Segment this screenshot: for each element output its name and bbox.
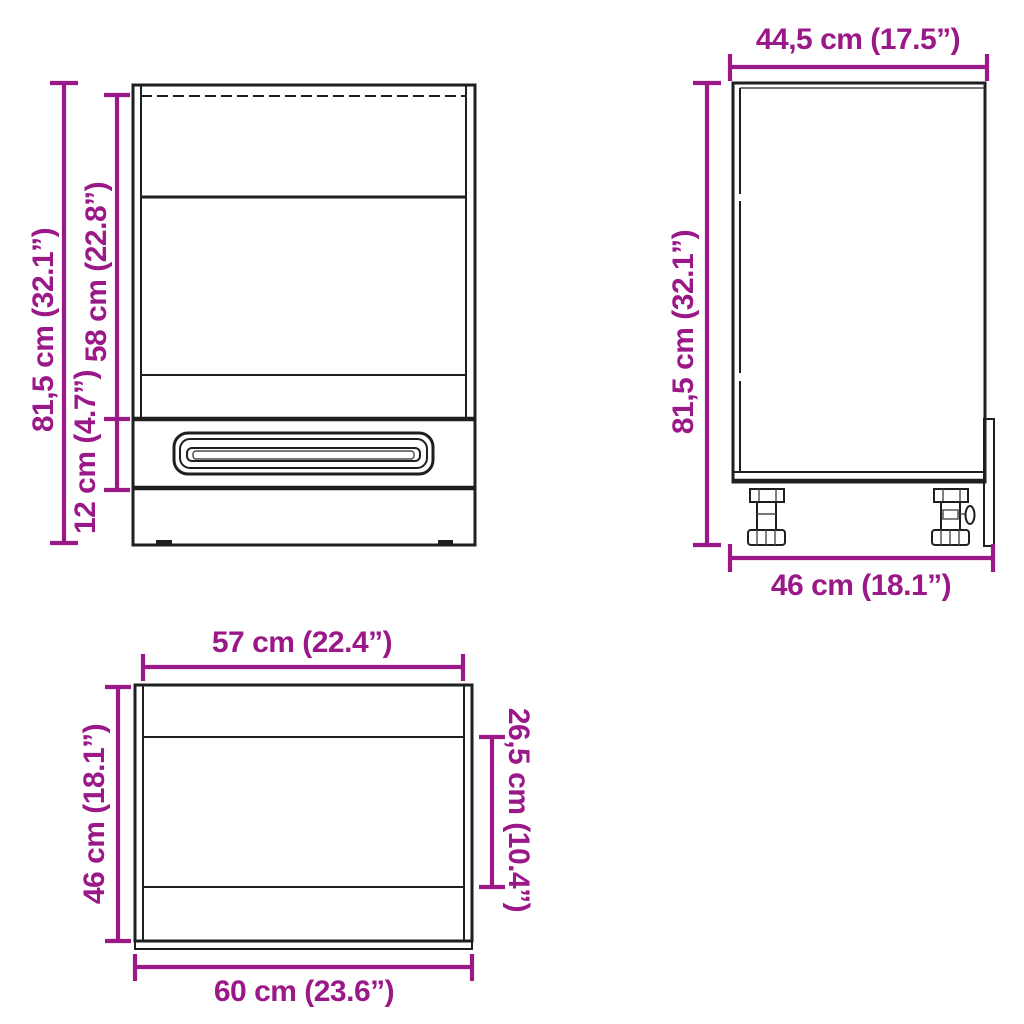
front-drawer-height-label: 12 cm (4.7”) <box>69 370 103 534</box>
top-view-drawing <box>135 685 472 949</box>
side-height-label: 81,5 cm (32.1”) <box>667 230 701 434</box>
side-leg-front <box>748 489 785 545</box>
side-leg-back <box>932 489 975 545</box>
dimension-diagram: 81,5 cm (32.1”) 58 cm (22.8”) 12 cm (4.7… <box>0 0 1024 1024</box>
top-depth-label: 46 cm (18.1”) <box>78 724 112 904</box>
top-inner-depth-label: 26,5 cm (10.4”) <box>501 708 535 912</box>
drawer-handle <box>174 433 433 474</box>
front-view-drawing <box>133 85 475 546</box>
front-total-height-label: 81,5 cm (32.1”) <box>27 228 61 432</box>
side-view-drawing <box>733 83 994 546</box>
front-foot-left <box>156 540 172 546</box>
side-top-depth-label: 44,5 cm (17.5”) <box>756 23 960 57</box>
top-outer-width-label: 60 cm (23.6”) <box>214 975 394 1009</box>
front-opening-height-label: 58 cm (22.8”) <box>80 182 114 362</box>
front-foot-right <box>438 540 453 546</box>
side-bottom-depth-label: 46 cm (18.1”) <box>771 569 951 603</box>
top-inner-width-label: 57 cm (22.4”) <box>212 626 392 660</box>
